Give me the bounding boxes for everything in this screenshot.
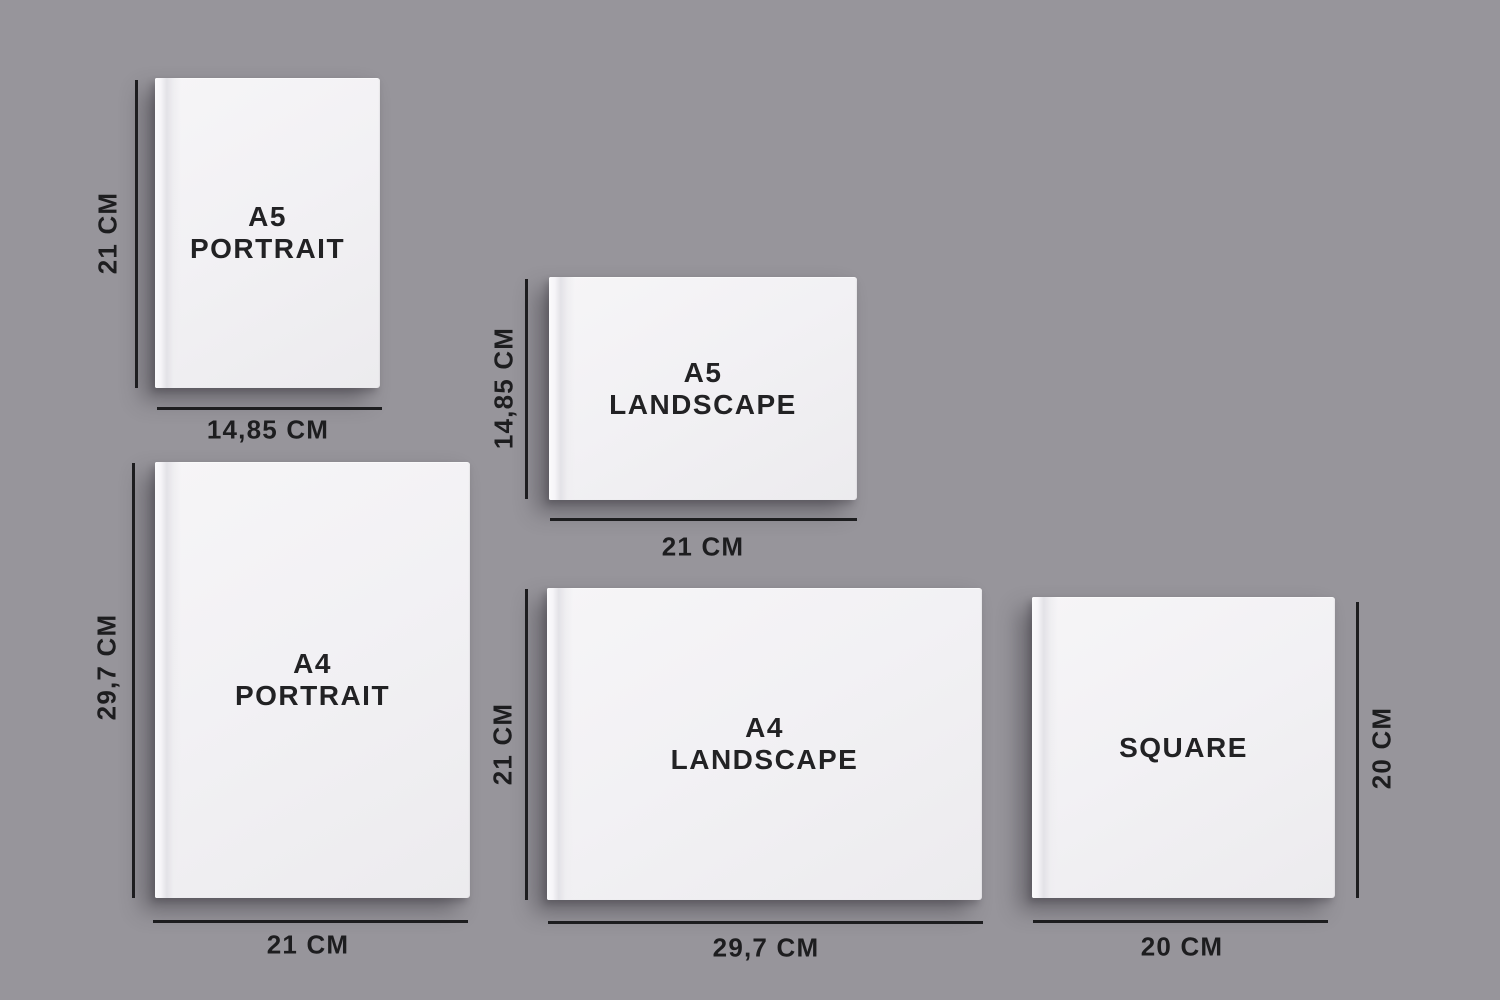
cover-title-line: PORTRAIT [190,233,345,265]
square-height-line [1356,602,1359,898]
square-width-line [1033,920,1328,923]
a5-portrait-cover-title: A5 PORTRAIT [155,78,380,388]
a4-landscape-height-line [525,589,528,900]
a5-portrait-height-label: 21 CM [93,192,124,275]
cover-title-line: A5 [248,201,287,233]
square-width-label: 20 CM [1141,932,1224,963]
a5-landscape-width-line [550,518,857,521]
cover-title-line: A4 [293,648,332,680]
a5-portrait-width-label: 14,85 CM [207,415,329,446]
a4-portrait-width-label: 21 CM [267,930,350,961]
a4-landscape-book: A4 LANDSCAPE [547,588,982,900]
cover-title-line: LANDSCAPE [609,389,797,421]
a4-portrait-cover-title: A4 PORTRAIT [155,462,470,898]
a4-landscape-cover-title: A4 LANDSCAPE [547,588,982,900]
a4-landscape-width-label: 29,7 CM [713,933,820,964]
a5-landscape-width-label: 21 CM [662,532,745,563]
cover-title-line: A5 [684,357,723,389]
square-cover-title: SQUARE [1032,597,1335,898]
a5-portrait-book: A5 PORTRAIT [155,78,380,388]
a5-landscape-cover-title: A5 LANDSCAPE [549,277,857,500]
size-comparison-diagram: 21 CM A5 PORTRAIT 14,85 CM 14,85 CM A5 L… [0,0,1500,1000]
a4-portrait-height-label: 29,7 CM [92,614,123,721]
cover-title-line: LANDSCAPE [671,744,859,776]
a5-landscape-height-line [525,279,528,499]
a5-landscape-book: A5 LANDSCAPE [549,277,857,500]
square-height-label: 20 CM [1367,707,1398,790]
a5-portrait-height-line [135,80,138,388]
a4-portrait-height-line [132,463,135,898]
a4-landscape-width-line [548,921,983,924]
cover-title-line: PORTRAIT [235,680,390,712]
square-book: SQUARE [1032,597,1335,898]
a4-portrait-book: A4 PORTRAIT [155,462,470,898]
a4-landscape-height-label: 21 CM [488,703,519,786]
a5-portrait-width-line [157,407,382,410]
a4-portrait-width-line [153,920,468,923]
a5-landscape-height-label: 14,85 CM [489,327,520,449]
cover-title-line: SQUARE [1119,732,1248,764]
cover-title-line: A4 [745,712,784,744]
